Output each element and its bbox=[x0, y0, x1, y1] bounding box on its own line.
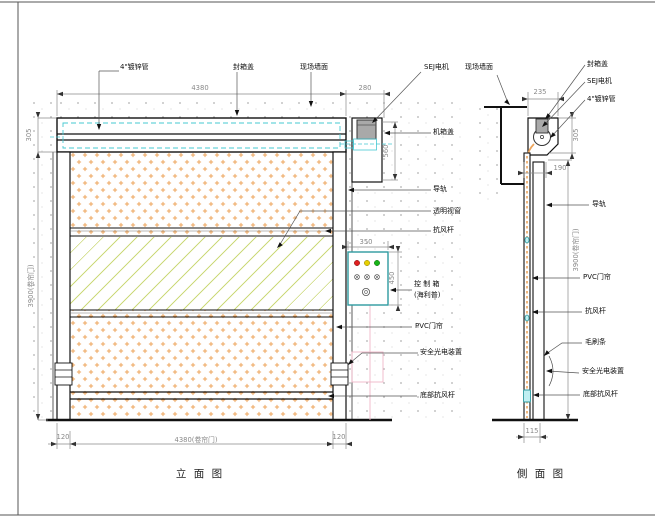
control-box bbox=[348, 252, 388, 305]
side-label-curtain: PVC门帘 bbox=[583, 273, 611, 282]
side-label-photocell: 安全光电装置 bbox=[582, 367, 624, 376]
conduit-pink-lines bbox=[352, 305, 383, 420]
front-dim-col-right: 120 bbox=[327, 433, 351, 441]
indicator-light-yellow bbox=[364, 260, 369, 265]
side-dim-rail-depth: 190 bbox=[548, 164, 572, 172]
front-dim-motor-box: 560 bbox=[382, 136, 392, 166]
front-label-motor: SEJ电机 bbox=[424, 63, 449, 72]
side-label-rail: 导轨 bbox=[592, 200, 606, 209]
front-dim-control-h: 450 bbox=[388, 263, 398, 293]
front-label-pipe: 4"镀锌管 bbox=[120, 63, 149, 72]
front-dim-door-height: 3900(卷帘门) bbox=[25, 258, 35, 314]
side-dim-lintel: 305 bbox=[572, 120, 582, 150]
side-label-brush: 毛刷条 bbox=[585, 338, 606, 347]
indicator-light-red bbox=[354, 260, 359, 265]
front-label-wind-bar: 抗风杆 bbox=[433, 226, 454, 235]
front-label-bottom-bar: 底部抗风杆 bbox=[420, 391, 455, 400]
front-label-rail: 导轨 bbox=[433, 185, 447, 194]
front-view-structure bbox=[46, 118, 392, 420]
side-dim-slab: 115 bbox=[520, 427, 544, 435]
side-label-motor: SEJ电机 bbox=[587, 77, 612, 86]
front-dim-bottom-width: 4380(卷帘门) bbox=[156, 434, 236, 444]
side-label-bottom-bar: 底部抗风杆 bbox=[583, 390, 618, 399]
side-label-wind-bar: 抗风杆 bbox=[585, 307, 606, 316]
side-view-caption: 側 面 图 bbox=[501, 466, 581, 481]
control-buttons bbox=[355, 275, 380, 280]
side-label-pipe: 4"镀锌管 bbox=[587, 95, 616, 104]
front-dim-lintel: 305 bbox=[25, 120, 35, 150]
side-view-structure bbox=[484, 107, 578, 420]
cad-drawing-canvas: 4"镀锌管 封箱盖 现场墙面 SEJ电机 机箱盖 导轨 透明视窗 抗风杆 控 制… bbox=[0, 0, 655, 518]
front-label-window: 透明视窗 bbox=[433, 207, 461, 216]
front-dim-top-width: 4380 bbox=[180, 84, 220, 92]
front-label-seal-cover: 封箱盖 bbox=[233, 63, 254, 72]
front-label-curtain: PVC门帘 bbox=[415, 322, 443, 331]
front-label-photocell: 安全光电装置 bbox=[420, 348, 462, 357]
front-view-caption: 立 面 图 bbox=[160, 466, 240, 481]
indicator-light-green bbox=[374, 260, 379, 265]
front-label-wall: 现场墙面 bbox=[300, 63, 328, 72]
side-label-wall: 现场墙面 bbox=[465, 63, 493, 72]
front-dim-col-left: 120 bbox=[51, 433, 75, 441]
side-dim-bracket-w: 235 bbox=[525, 88, 555, 96]
side-dim-door-height: 3900(卷帘门) bbox=[570, 222, 580, 278]
front-label-control-1: 控 制 箱 bbox=[414, 280, 439, 289]
control-knob bbox=[362, 288, 369, 295]
front-dim-control-w: 350 bbox=[351, 238, 381, 246]
front-label-machine-cover: 机箱盖 bbox=[433, 128, 454, 137]
side-label-seal-cover: 封箱盖 bbox=[587, 60, 608, 69]
front-label-control-2: (海利普) bbox=[414, 291, 440, 300]
front-dim-side-offset: 280 bbox=[350, 84, 380, 92]
